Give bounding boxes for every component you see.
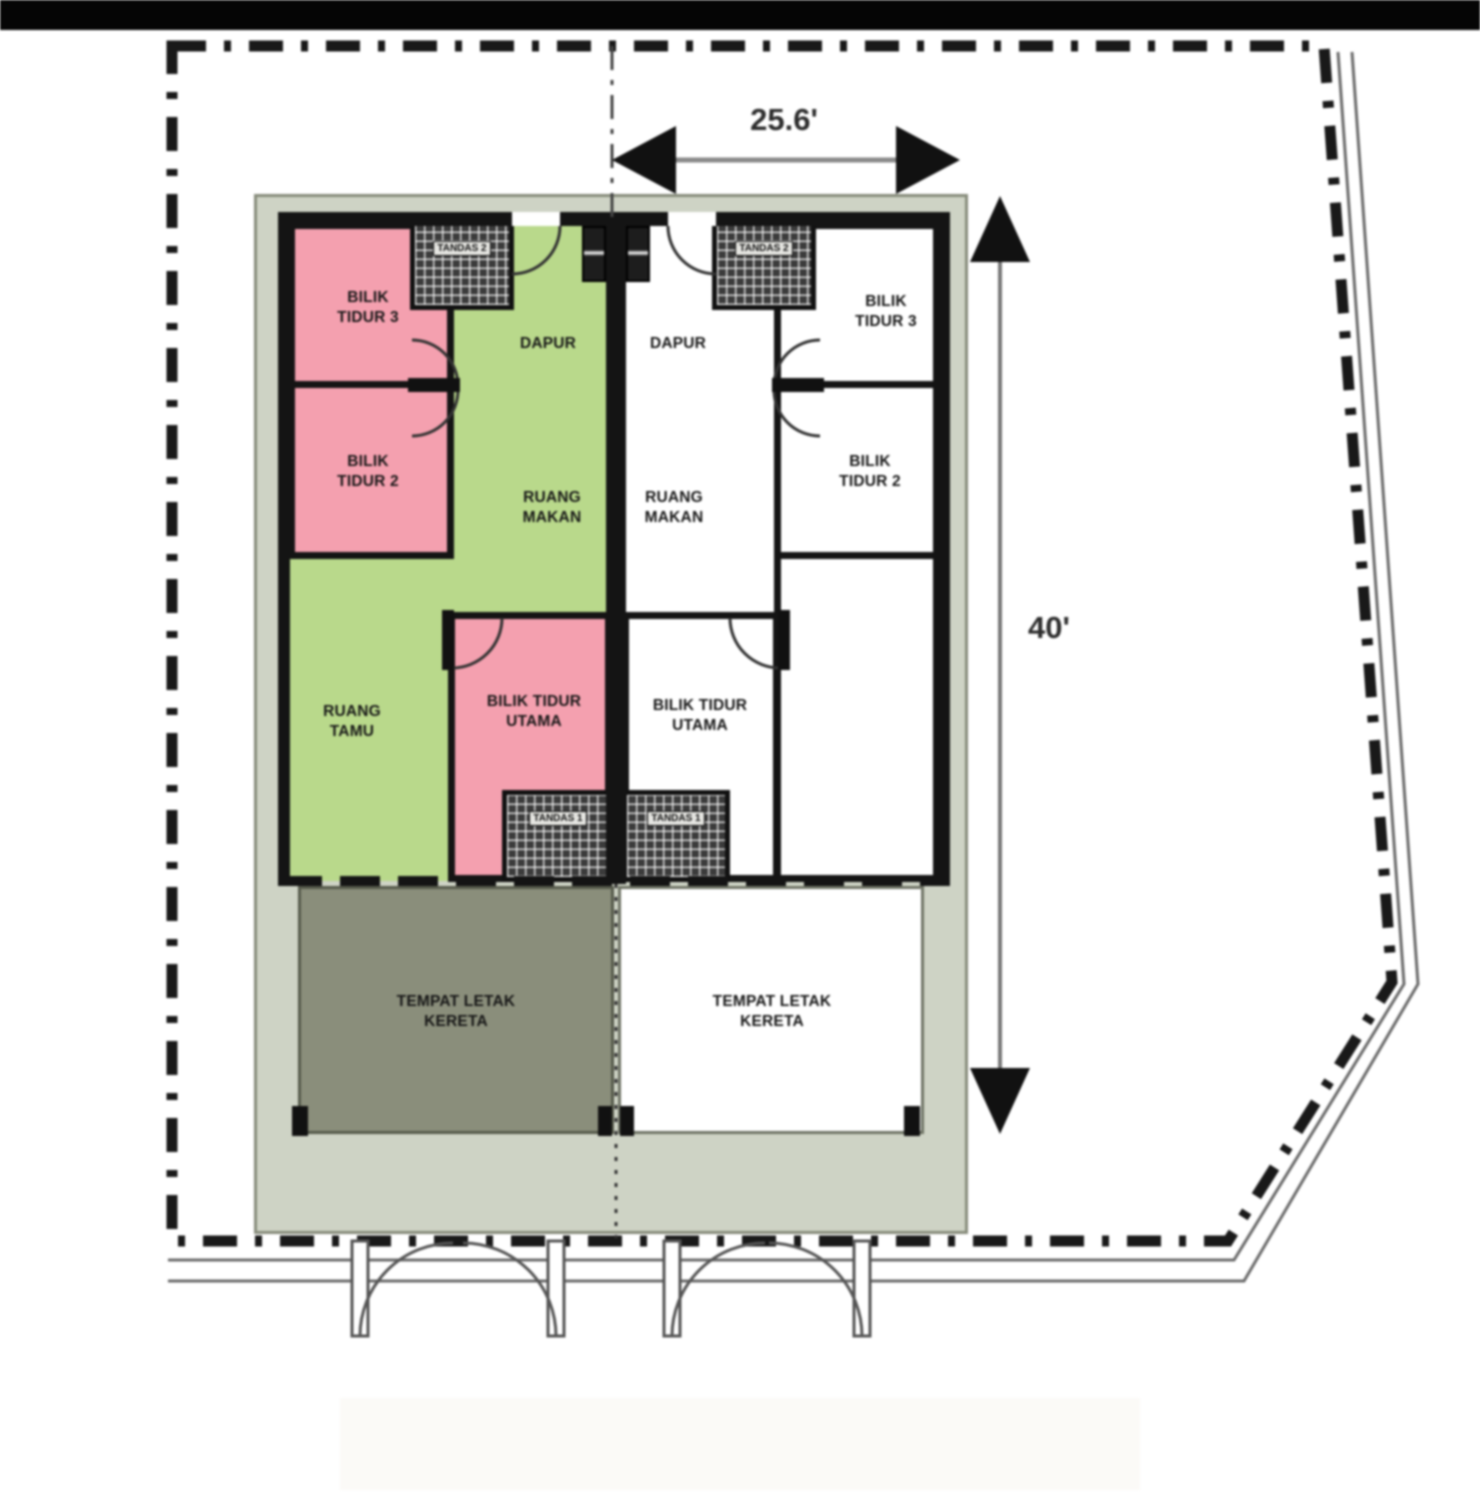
tandas-2-right: TANDAS 2 [712,220,816,310]
floor-plan-page: TANDAS 2 TANDAS 2 TANDAS 1 TANDAS 1 [0,0,1480,1500]
gate-left [352,1241,564,1336]
tandas-2-right-label: TANDAS 2 [735,241,792,256]
house-wall-right [938,212,950,886]
tandas-1-right-label: TANDAS 1 [647,811,704,826]
label-tempat-letak-kereta-right: TEMPAT LETAK KERETA [697,992,847,1032]
house-wall-left [278,212,290,886]
label-bilik-tidur-utama-right: BILIK TIDUR UTAMA [640,696,760,736]
meter-box-left [582,226,606,282]
tandas-1-right: TANDAS 1 [622,790,730,882]
label-bilik-tidur-2-right: BILIK TIDUR 2 [825,452,915,492]
watermark-shadow [340,1398,1140,1490]
room-ruang-tamu-right [774,552,940,882]
meter-box-right [626,226,650,282]
party-wall [606,212,626,884]
label-dapur-right: DAPUR [628,334,728,354]
tandas-1-left-label: TANDAS 1 [529,811,586,826]
depth-dimension-arrow [970,196,1030,1134]
entry-opening-left [512,212,560,226]
tandas-2-left-label: TANDAS 2 [433,241,490,256]
entry-opening-right [668,212,716,226]
label-bilik-tidur-2-left: BILIK TIDUR 2 [323,452,413,492]
label-ruang-makan-left: RUANG MAKAN [517,488,587,528]
top-black-bar [0,0,1480,30]
label-ruang-makan-right: RUANG MAKAN [639,488,709,528]
label-ruang-tamu-left: RUANG TAMU [317,702,387,742]
depth-dimension-label: 40' [1028,610,1070,646]
label-dapur-left: DAPUR [498,334,598,354]
label-bilik-tidur-3-left: BILIK TIDUR 3 [323,288,413,328]
gate-right [664,1241,870,1336]
tandas-1-left: TANDAS 1 [502,790,614,882]
label-bilik-tidur-3-right: BILIK TIDUR 3 [841,292,931,332]
label-tempat-letak-kereta-left: TEMPAT LETAK KERETA [381,992,531,1032]
width-dimension-label: 25.6' [750,102,818,138]
label-bilik-tidur-utama-left: BILIK TIDUR UTAMA [474,692,594,732]
tandas-2-left: TANDAS 2 [410,220,514,310]
floor-plan-drawing: TANDAS 2 TANDAS 2 TANDAS 1 TANDAS 1 [0,0,1480,1500]
